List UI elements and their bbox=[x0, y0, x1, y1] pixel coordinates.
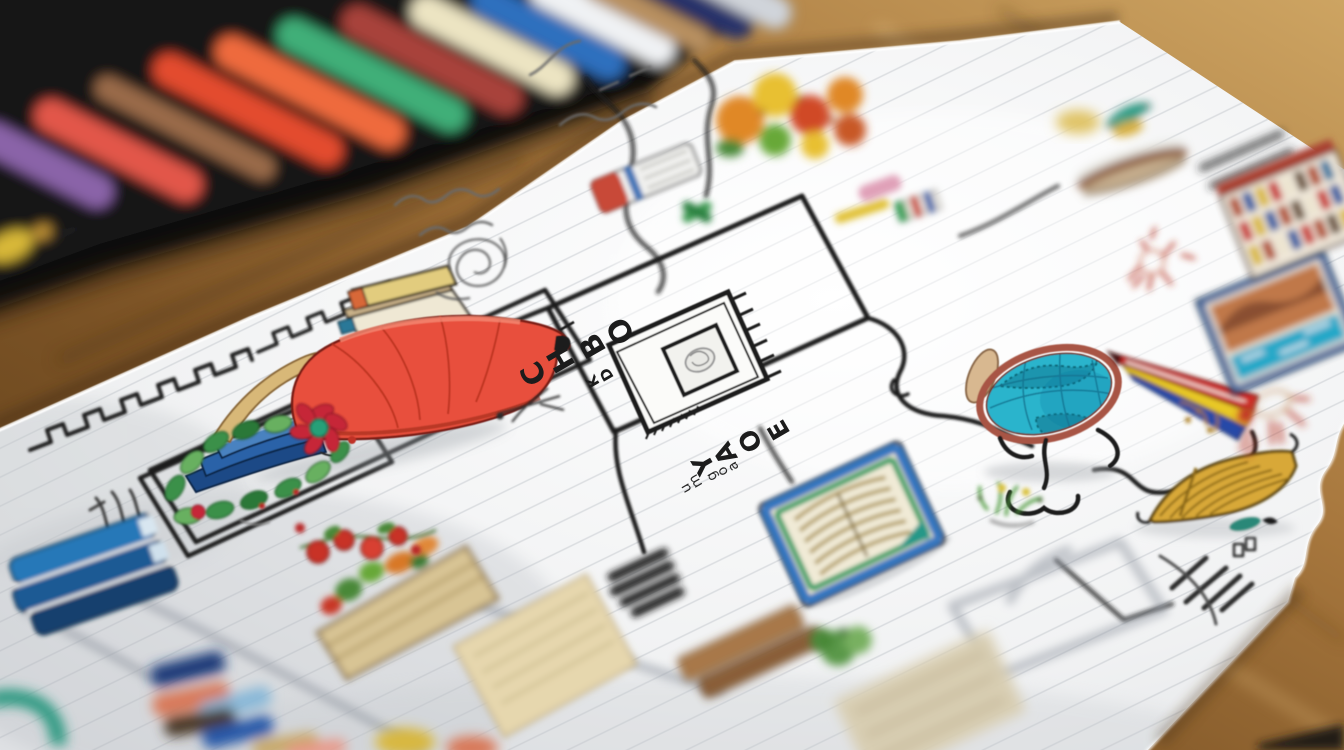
photo-canvas: CHBO KD umgoa YAOE bbox=[0, 0, 1344, 750]
globe-shadow bbox=[984, 462, 1116, 482]
wreath-bud bbox=[191, 505, 205, 519]
photo-desk-mindmap: CHBO KD umgoa YAOE bbox=[0, 0, 1344, 750]
yellow-smudge bbox=[1056, 110, 1100, 134]
